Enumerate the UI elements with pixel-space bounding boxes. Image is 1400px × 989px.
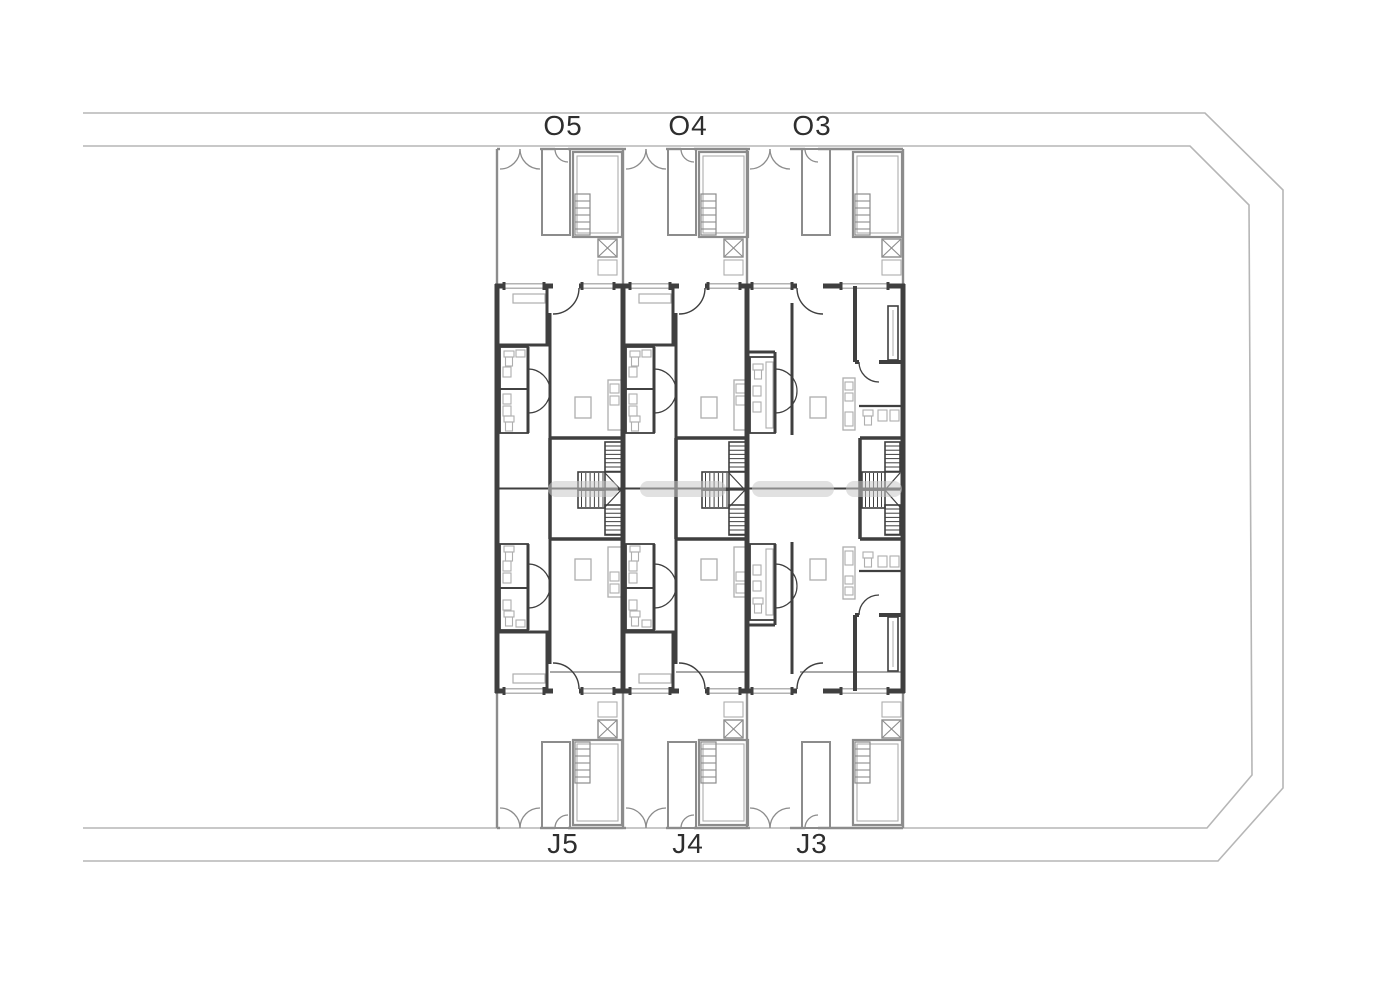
- unit-label-o5: O5: [543, 112, 582, 140]
- unit-label-j5: J5: [547, 830, 579, 858]
- unit-label-j4: J4: [672, 830, 704, 858]
- watermark: [548, 481, 902, 497]
- unit-label-o4: O4: [668, 112, 707, 140]
- site-plan-page: O5 O4 O3 J5 J4 J3: [0, 0, 1400, 989]
- unit-label-j3: J3: [796, 830, 828, 858]
- unit-label-o3: O3: [792, 112, 831, 140]
